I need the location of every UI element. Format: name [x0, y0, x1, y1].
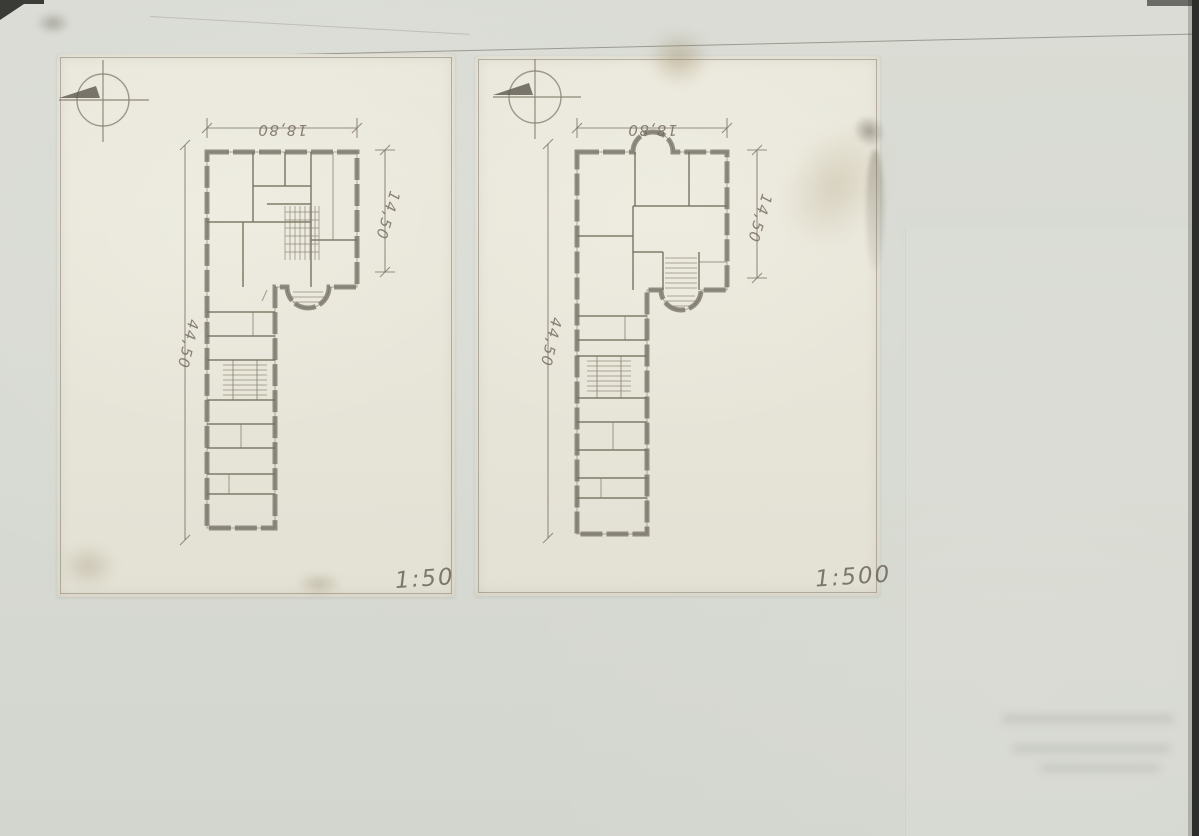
dimension-label-right-depth: 14,50 [372, 189, 404, 243]
dimension-top: 18,80 [572, 118, 732, 139]
building-outline [577, 132, 727, 534]
ink-bleed-ghost [1002, 714, 1174, 724]
stair-hatch-upper [285, 206, 325, 302]
dimension-right: 14,50 [744, 145, 776, 283]
dimension-label-top-width: 18,80 [257, 121, 307, 139]
scale-annotation: 1:500 [814, 561, 892, 592]
dimension-left: 44,50 [537, 139, 566, 543]
right-floor-plan-drawing: 18,80 14,50 44,50 [475, 56, 880, 596]
right-plan-sheet: 18,80 14,50 44,50 [475, 56, 880, 596]
building-outline [207, 152, 357, 528]
dimension-label-left-length: 44,50 [174, 318, 203, 371]
north-compass-icon [493, 59, 581, 139]
scale-annotation: 1:50 [394, 564, 455, 594]
dimension-label-left-length: 44,50 [537, 316, 566, 369]
interior-walls-upper [577, 152, 727, 290]
north-compass-icon [59, 60, 149, 142]
interior-walls-upper [207, 152, 357, 301]
stair-hatch-upper [665, 258, 697, 306]
ink-bleed-ghost [1040, 764, 1160, 772]
dimension-label-right-depth: 14,50 [744, 192, 776, 246]
dimension-top: 18,80 [202, 118, 362, 139]
dimension-left: 44,50 [174, 140, 203, 545]
scan-edge-dark [1192, 0, 1199, 836]
ink-bleed-ghost [1012, 744, 1170, 753]
stair-hatch-wing [223, 360, 267, 400]
interior-walls-wing [207, 312, 275, 494]
scan-edge-dark [0, 0, 44, 4]
dimension-right: 14,50 [372, 145, 404, 277]
left-plan-sheet: 18,80 14,50 44,50 [57, 54, 455, 597]
left-floor-plan-drawing: 18,80 14,50 44,50 [57, 54, 455, 597]
north-arrow [493, 83, 533, 95]
interior-walls-wing [577, 316, 647, 498]
stair-hatch-wing [587, 356, 631, 398]
